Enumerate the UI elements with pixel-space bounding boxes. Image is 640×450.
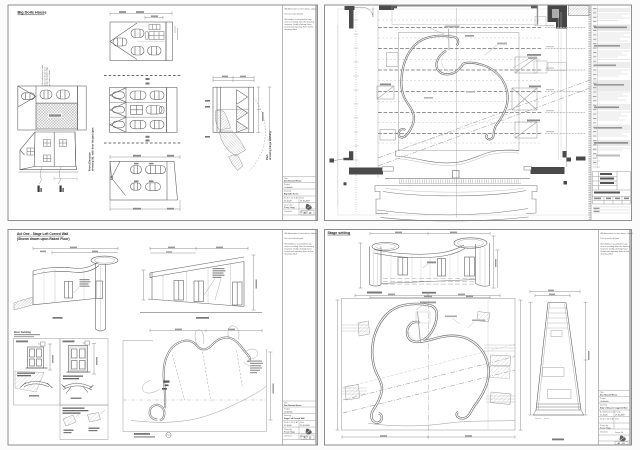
svg-text:(Shown drawn upon Raked Floor): (Shown drawn upon Raked Floor): [17, 237, 70, 241]
svg-text:17-10-09: 17-10-09: [284, 425, 292, 427]
svg-text:Title: Title: [284, 402, 288, 405]
svg-text:Dun Roamin Manor: Dun Roamin Manor: [284, 181, 302, 183]
svg-text:Do not scale off print: Do not scale off print: [285, 13, 304, 16]
svg-text:All dimensions in mm unless st: All dimensions in mm unless stated: [601, 232, 633, 235]
svg-text:27-10-2009: 27-10-2009: [300, 201, 310, 203]
svg-text:Act One - Stage Left Curved Wa: Act One - Stage Left Curved Wall: [17, 232, 68, 236]
svg-text:Date: Date: [615, 418, 619, 421]
svg-text:Cinderella: Cinderella: [284, 186, 293, 189]
svg-text:Drawing: Drawing: [600, 404, 607, 407]
svg-text:Checked: Checked: [600, 432, 607, 434]
svg-text:Drawing: Drawing: [284, 414, 291, 417]
svg-text:Drawing: Drawing: [284, 190, 291, 193]
svg-text:drawing office: drawing office: [601, 253, 614, 256]
svg-text:Cinderella: Cinderella: [600, 400, 609, 403]
svg-text:Cinderella: Cinderella: [284, 411, 293, 414]
svg-text:Ruary Stagg: Ruary Stagg: [284, 206, 295, 209]
svg-text:Checked: Checked: [284, 436, 291, 438]
svg-text:27-10-2009: 27-10-2009: [300, 425, 310, 427]
svg-text:Door handing: Door handing: [14, 330, 31, 334]
svg-text:Scale 1:25 @ A1: Scale 1:25 @ A1: [284, 197, 298, 200]
svg-text:All dimensions in mm unless st: All dimensions in mm unless stated: [285, 232, 317, 235]
svg-text:Date: Date: [300, 197, 304, 200]
svg-text:All dimensions in mm unless st: All dimensions in mm unless stated: [285, 8, 317, 11]
svg-text:Big Dolls House: Big Dolls House: [284, 194, 299, 196]
svg-text:Date: Date: [300, 421, 304, 424]
svg-text:Big Dolls House: Big Dolls House: [18, 11, 47, 15]
svg-text:Dun Roamin Manor: Dun Roamin Manor: [284, 405, 302, 407]
svg-text:showing lid, with door hinged: showing lid, with door hinged open: [91, 127, 95, 171]
svg-text:Ruary Stagg: Ruary Stagg: [600, 427, 611, 430]
svg-text:Project: Project: [284, 408, 290, 411]
svg-text:Project: Project: [284, 183, 290, 186]
svg-text:Scale 1:50 @ A1: Scale 1:50 @ A1: [600, 418, 614, 421]
svg-text:Do not scale off print: Do not scale off print: [285, 237, 304, 240]
svg-text:Scale 1:25 @ A1: Scale 1:25 @ A1: [284, 421, 298, 424]
svg-text:A1 - 12: A1 - 12: [304, 437, 313, 440]
svg-text:Title: Title: [600, 391, 604, 394]
svg-text:Ruary Stagg: Ruary Stagg: [284, 431, 295, 434]
svg-text:drawing office: drawing office: [285, 253, 298, 256]
svg-text:as shown in detail: as shown in detail: [48, 70, 51, 86]
svg-text:27-10-09: 27-10-09: [284, 201, 292, 203]
svg-text:A1 - 10: A1 - 10: [304, 212, 313, 215]
svg-text:Drawn Nr: Drawn Nr: [615, 431, 623, 434]
svg-text:Checked: Checked: [284, 211, 291, 213]
svg-text:Stage Left Curved Wall: Stage Left Curved Wall: [284, 417, 305, 420]
svg-text:Dun Roamin Manor: Dun Roamin Manor: [600, 395, 618, 397]
svg-text:Act & All built on riser frame: Act & All built on riser frame: [600, 411, 621, 414]
svg-text:A1 - 16: A1 - 16: [618, 442, 626, 445]
svg-text:Project: Project: [600, 397, 606, 400]
svg-text:Stage setting: Stage setting: [328, 231, 351, 235]
svg-text:Title: Title: [284, 177, 288, 180]
svg-text:Stage setting over suggested f: Stage setting over suggested floor: [600, 407, 628, 410]
svg-text:drawing office: drawing office: [285, 28, 298, 31]
svg-text:Do not scale off print: Do not scale off print: [601, 237, 620, 240]
svg-text:17-10-09: 17-10-09: [600, 415, 608, 417]
svg-text:27-10-2009: 27-10-2009: [615, 415, 625, 417]
svg-text:showing hinge working: showing hinge working: [268, 131, 272, 160]
